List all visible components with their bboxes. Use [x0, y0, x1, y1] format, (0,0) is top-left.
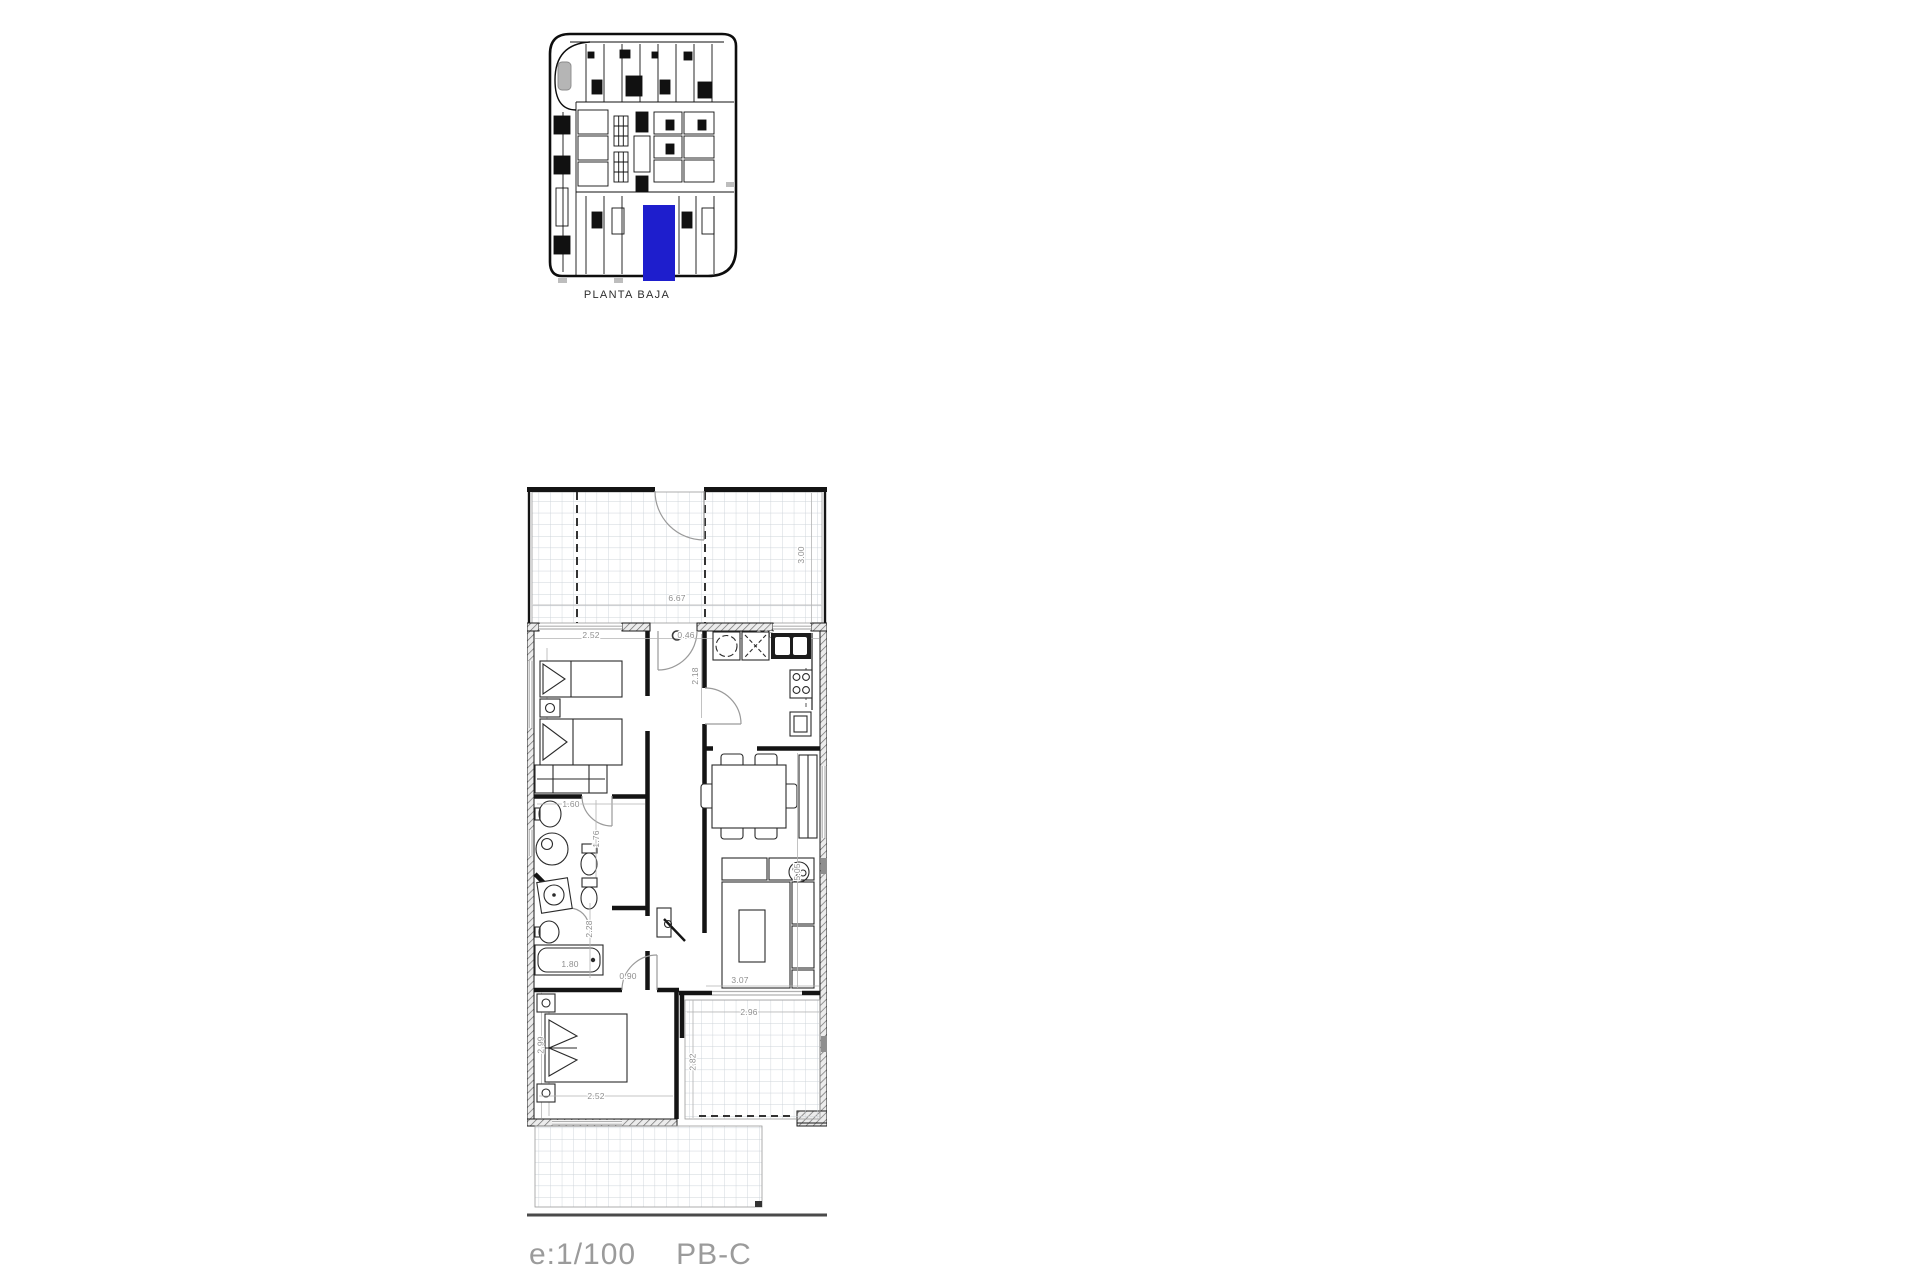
dim-living-depth: 5.05	[792, 863, 802, 880]
dim-entry-width: 0.46	[677, 630, 694, 640]
window-bedroom1-left	[528, 661, 534, 728]
kitchen	[713, 632, 812, 736]
shower-icon	[536, 833, 568, 865]
dim-bath1-depth: 1.76	[591, 830, 601, 847]
dim-bedroom2-width: 2.52	[587, 1091, 604, 1101]
building-overview-plan	[548, 32, 738, 284]
window-bedroom2-bottom	[552, 1120, 622, 1125]
sink-icon	[771, 633, 811, 659]
dim-bedroom2-depth: 2.99	[536, 1036, 546, 1053]
wardrobe-icon	[535, 765, 607, 793]
plan-footer: e:1/100 PB-C	[529, 1238, 752, 1272]
living-dining: 5.05 3.07	[657, 753, 819, 988]
dining-table-icon	[701, 754, 797, 839]
scale-label: e:1/100	[529, 1238, 636, 1272]
dishwasher-icon	[742, 632, 769, 660]
plan-code: PB-C	[676, 1238, 752, 1272]
dim-terrace2-width: 2.96	[740, 1007, 757, 1017]
washing-machine-icon	[713, 632, 740, 660]
overview-caption: PLANTA BAJA	[520, 289, 734, 301]
window-bedroom1-top	[539, 624, 622, 630]
terrace-bottom: 2.96 2.82	[685, 1000, 820, 1119]
dim-bathtub-length: 1.80	[561, 959, 578, 969]
stove-icon	[790, 670, 812, 698]
dim-terrace-width: 6.67	[668, 593, 685, 603]
bedroom-2: 2.52 2.99	[536, 992, 674, 1118]
bathroom-2: 2.28 1.80 0.90	[535, 878, 637, 981]
toilet-icon	[581, 878, 597, 909]
page: PLANTA BAJA 6.67 3.00	[0, 0, 1920, 1280]
nightstand-icon	[540, 699, 560, 717]
tv-door-icon	[657, 908, 685, 941]
bed-icon	[545, 1014, 627, 1082]
nightstand-icon	[537, 994, 555, 1012]
bathroom-1: 1.60 1.76	[535, 799, 645, 886]
dim-hall-depth: 2.18	[690, 667, 700, 684]
dim-bedroom1-width: 2.52	[582, 630, 599, 640]
dim-living-width: 3.07	[731, 975, 748, 985]
bidet-icon	[535, 921, 559, 943]
window-kitchen-top	[773, 624, 811, 630]
window-living-right	[821, 766, 827, 838]
sideboard-icon	[799, 755, 817, 838]
washbasin-icon	[535, 801, 561, 827]
apartment-floorplan: 6.67 3.00	[527, 478, 827, 1222]
shower2-icon	[537, 878, 572, 913]
patio-bottom	[535, 1126, 762, 1207]
terrace-top: 6.67 3.00	[527, 487, 827, 625]
cabinet-icon	[790, 712, 811, 736]
bed-icon	[540, 661, 622, 697]
bed-icon	[540, 719, 622, 765]
nightstand-icon	[537, 1084, 555, 1102]
dim-corridor-width: 0.90	[619, 971, 636, 981]
sliding-door-terrace2	[712, 992, 802, 996]
window-bath1-left	[528, 830, 534, 856]
highlighted-unit	[643, 205, 675, 281]
dim-bath2-depth: 2.28	[584, 920, 594, 937]
dim-bath1-width: 1.60	[562, 799, 579, 809]
bedroom-1	[535, 648, 622, 793]
coffee-table-icon	[739, 910, 765, 962]
dim-terrace2-depth: 2.82	[688, 1053, 698, 1070]
dim-terrace-depth: 3.00	[796, 546, 806, 563]
